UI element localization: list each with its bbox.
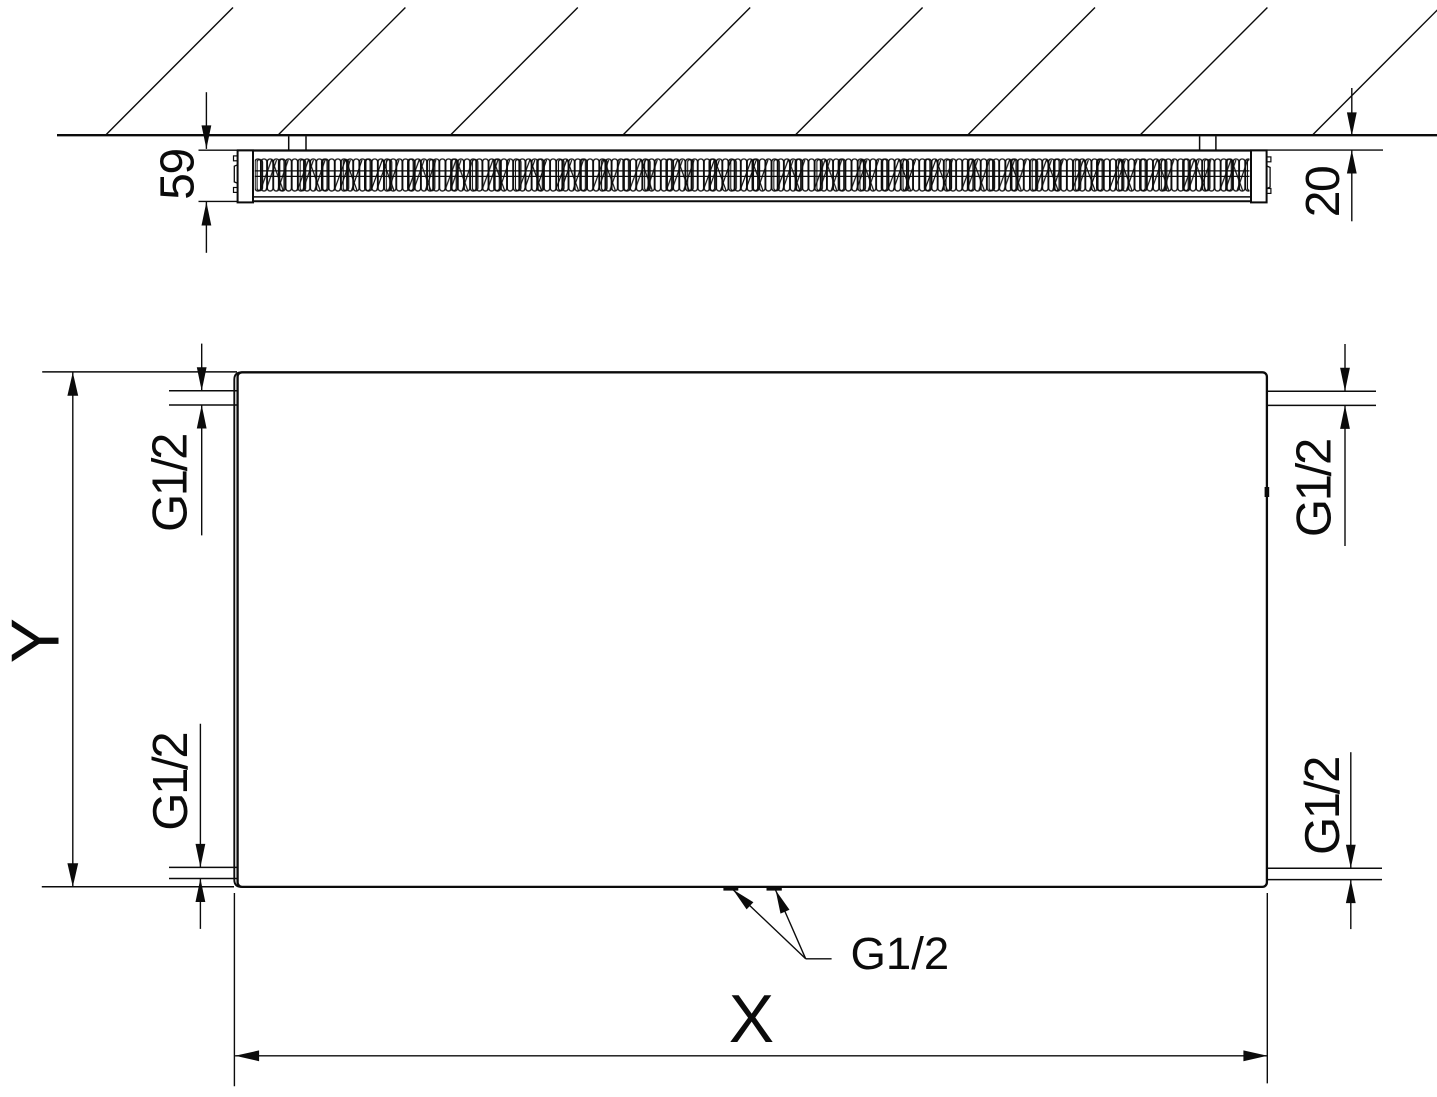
svg-text:G1/2: G1/2 [144,435,198,532]
svg-text:20: 20 [1297,167,1350,217]
svg-text:59: 59 [152,149,205,199]
svg-text:G1/2: G1/2 [144,734,198,831]
svg-text:G1/2: G1/2 [1296,758,1350,855]
svg-text:G1/2: G1/2 [1288,440,1342,537]
svg-text:Y: Y [0,618,74,663]
svg-text:X: X [729,981,774,1057]
svg-text:G1/2: G1/2 [851,928,950,979]
